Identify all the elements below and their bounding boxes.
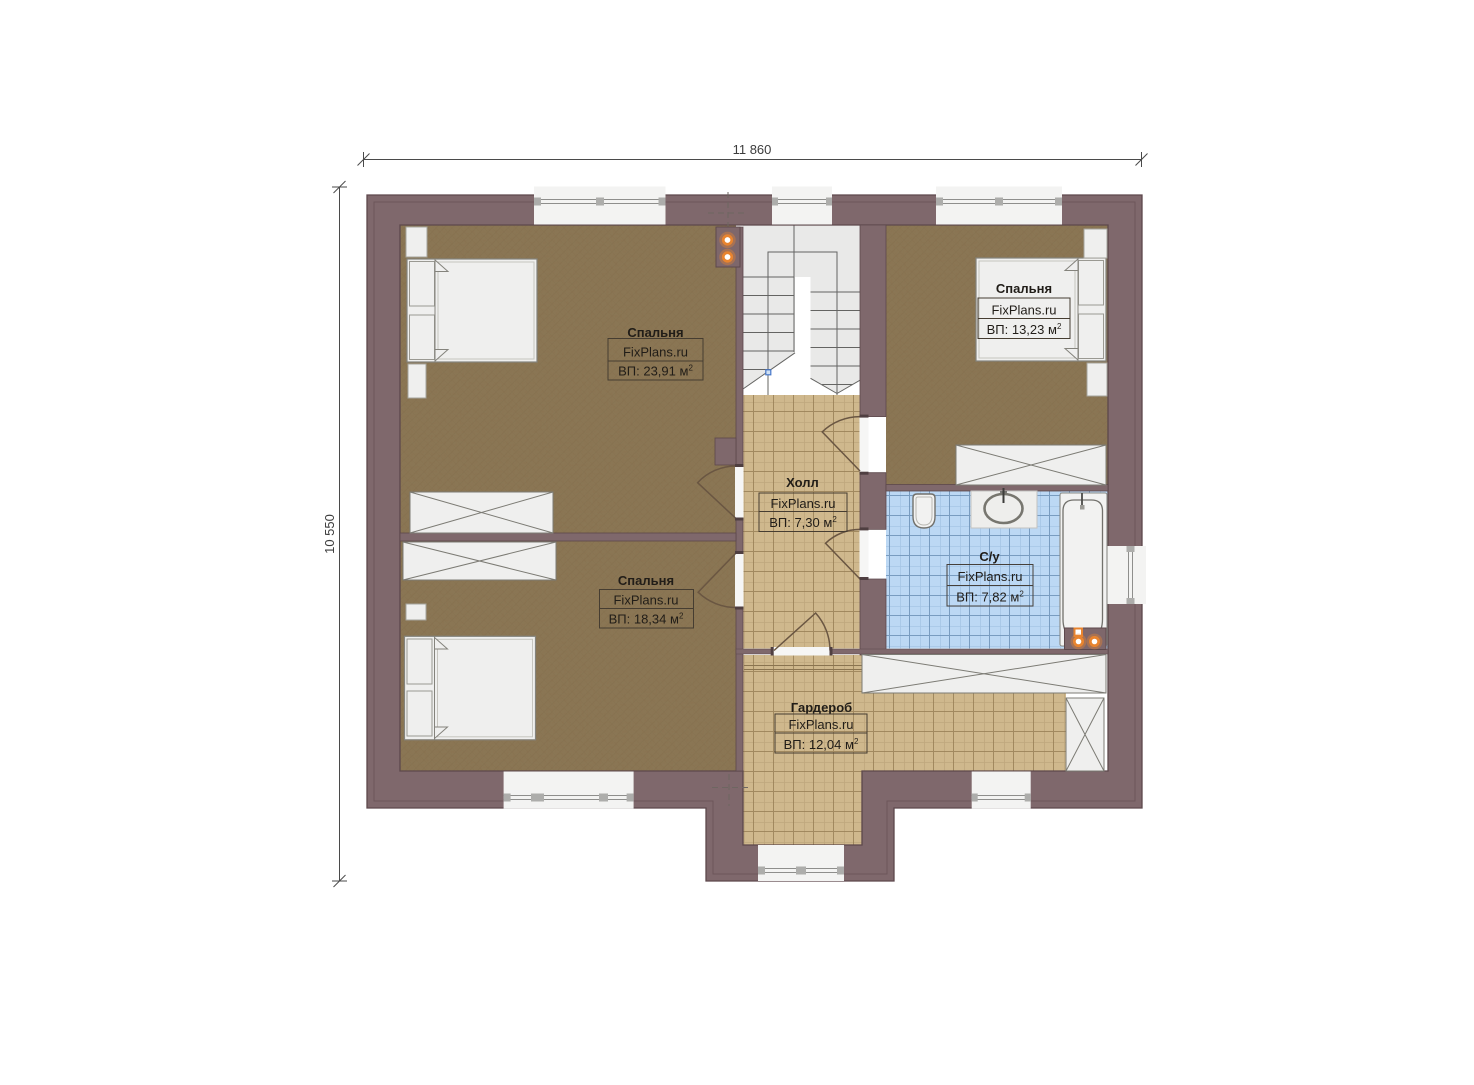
- svg-text:Холл: Холл: [786, 475, 819, 490]
- svg-text:11 860: 11 860: [733, 142, 772, 157]
- svg-text:FixPlans.ru: FixPlans.ru: [957, 569, 1022, 584]
- svg-text:FixPlans.ru: FixPlans.ru: [788, 717, 853, 732]
- svg-text:FixPlans.ru: FixPlans.ru: [613, 593, 678, 608]
- svg-text:ВП: 18,34 м2: ВП: 18,34 м2: [609, 612, 684, 627]
- svg-text:Спальня: Спальня: [996, 281, 1052, 296]
- svg-text:ВП: 23,91 м2: ВП: 23,91 м2: [618, 364, 693, 379]
- svg-text:Спальня: Спальня: [627, 325, 683, 340]
- svg-text:С/у: С/у: [979, 549, 1000, 564]
- svg-text:FixPlans.ru: FixPlans.ru: [623, 345, 688, 360]
- svg-text:Спальня: Спальня: [618, 573, 674, 588]
- svg-text:ВП: 7,30 м2: ВП: 7,30 м2: [769, 515, 837, 530]
- svg-text:ВП: 13,23 м2: ВП: 13,23 м2: [987, 322, 1062, 337]
- svg-text:FixPlans.ru: FixPlans.ru: [991, 303, 1056, 318]
- svg-text:Гардероб: Гардероб: [791, 700, 852, 715]
- svg-text:ВП: 12,04 м2: ВП: 12,04 м2: [784, 737, 859, 752]
- svg-text:10 550: 10 550: [322, 514, 337, 554]
- svg-text:FixPlans.ru: FixPlans.ru: [770, 496, 835, 511]
- svg-text:ВП: 7,82 м2: ВП: 7,82 м2: [956, 590, 1024, 605]
